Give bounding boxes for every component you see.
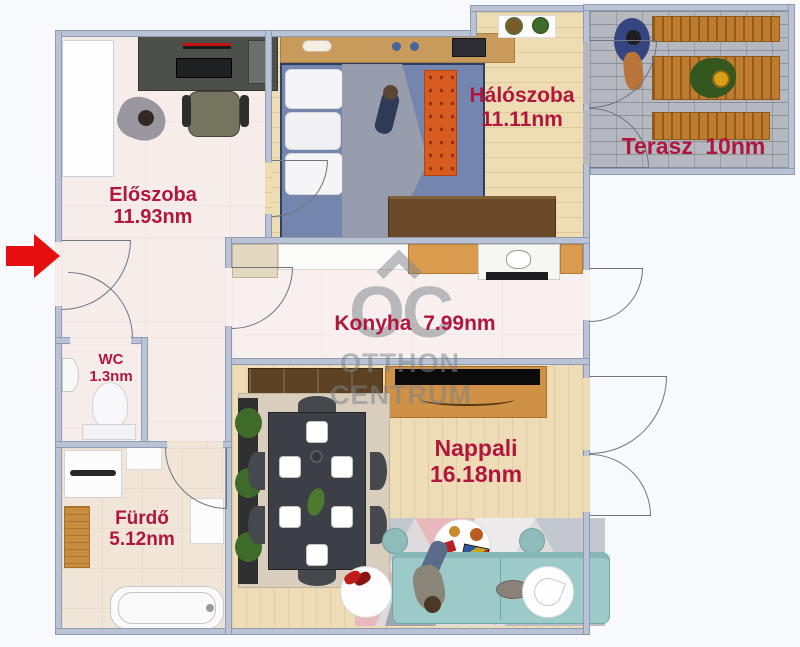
- plate-left-1: [279, 456, 301, 478]
- wc-door-gap: [70, 337, 131, 344]
- room-name: Előszoba: [88, 184, 218, 206]
- coffee-table-dish: [470, 528, 483, 541]
- keyboard: [176, 58, 232, 78]
- room-area: 1.3nm: [80, 369, 142, 386]
- pouf-right: [519, 528, 545, 554]
- wardrobe: [62, 40, 114, 177]
- headboard-item-tablet: [452, 38, 486, 57]
- room-label-furdo: Fürdő 5.12nm: [92, 508, 192, 551]
- room-label-nappali: Nappali 16.18nm: [406, 436, 546, 488]
- wall-terrace-right: [788, 4, 795, 175]
- dining-chair-bottom: [298, 569, 336, 586]
- room-label-terasz: Terasz 10nm: [606, 134, 781, 160]
- wall-bottom: [55, 628, 590, 635]
- kitchen-stove-strip: [486, 272, 548, 280]
- wall-left: [55, 30, 62, 635]
- wc-sink-icon: [62, 358, 79, 392]
- furdo-door-gap: [167, 441, 223, 448]
- plate-right-2: [331, 506, 353, 528]
- headboard-item-tray: [302, 40, 332, 52]
- pouf-left: [382, 528, 408, 554]
- floor-plan: OC OTTHON CENTRUM Előszoba 11.93nm Hálós…: [0, 0, 800, 647]
- headboard-dot-2: [410, 42, 419, 51]
- office-chair-wheel-left: [182, 95, 191, 127]
- wall-terrace-top: [583, 4, 795, 11]
- room-eloszoba-corridor-floor: [148, 337, 225, 448]
- room-label-haloszoba: Hálószoba 11.11nm: [452, 84, 592, 131]
- room-name: WC: [80, 352, 142, 369]
- wall-wc-right: [141, 337, 148, 448]
- room-label-eloszoba: Előszoba 11.93nm: [88, 184, 218, 229]
- kitchen-left-door-gap: [225, 268, 232, 326]
- terrace-planter-1: [652, 16, 780, 42]
- wall-top-right: [470, 5, 590, 12]
- dining-chair-left-1: [248, 452, 265, 490]
- room-name: Hálószoba: [452, 84, 592, 108]
- person-figure-bed-head: [383, 85, 398, 100]
- person-figure-sofa-head: [424, 596, 441, 613]
- potted-plant-icon-2: [532, 17, 549, 34]
- toilet-tank-icon: [82, 424, 136, 440]
- bed-pillow-2: [285, 112, 341, 150]
- plant-icon-1: [235, 408, 262, 438]
- bathtub-faucet-icon: [206, 604, 214, 612]
- kitchen-right-door-gap: [583, 270, 590, 320]
- person-figure-eloszoba-head: [138, 110, 154, 126]
- watermark-line2: CENTRUM: [330, 380, 470, 411]
- toilet-bowl-icon: [92, 382, 128, 428]
- nappali-door-gap-1: [583, 378, 590, 450]
- watermark-line1: OTTHON: [330, 348, 470, 379]
- room-label-konyha: Konyha 7.99nm: [325, 312, 505, 336]
- room-area: 11.11nm: [452, 108, 592, 132]
- office-chair: [188, 91, 240, 137]
- room-name: Konyha: [334, 312, 411, 335]
- table-candle: [310, 450, 323, 463]
- dresser: [388, 196, 556, 240]
- room-name: Terasz: [622, 133, 693, 159]
- potted-plant-icon: [505, 17, 523, 35]
- kitchen-right-door-arc: [590, 268, 643, 322]
- room-name: Nappali: [406, 436, 546, 462]
- room-area: 5.12nm: [92, 529, 192, 550]
- room-area: 16.18nm: [406, 462, 546, 488]
- plate-top: [306, 421, 328, 443]
- nappali-door-gap-2: [583, 456, 590, 512]
- plate-bottom: [306, 544, 328, 566]
- entrance-arrow-icon: [6, 234, 62, 278]
- plate-left-2: [279, 506, 301, 528]
- room-area: 11.93nm: [88, 206, 218, 228]
- bedroom-door-gap: [265, 162, 272, 214]
- desk-decor-red: [183, 43, 231, 49]
- kitchen-cabinet-right: [560, 244, 583, 274]
- dining-chair-right-1: [370, 452, 387, 490]
- room-name: Fürdő: [92, 508, 192, 529]
- washing-machine-slot: [70, 470, 116, 476]
- nappali-door-arc-2: [590, 454, 651, 516]
- bathroom-wood-cabinet: [64, 506, 90, 568]
- sunflower-bloom-icon: [712, 70, 730, 88]
- headboard-dot-1: [392, 42, 401, 51]
- wall-kitchen-top: [225, 237, 590, 244]
- plate-right-1: [331, 456, 353, 478]
- wall-terrace-bottom: [590, 168, 795, 175]
- room-label-wc: WC 1.3nm: [80, 352, 142, 386]
- nappali-door-arc-1: [590, 376, 667, 454]
- bed-pillow-1: [285, 69, 343, 109]
- bathtub-inner: [118, 592, 216, 624]
- room-area: 7.99nm: [423, 312, 495, 335]
- dining-chair-left-2: [248, 506, 265, 544]
- kitchen-sink-icon: [506, 250, 531, 269]
- office-chair-wheel-right: [240, 95, 249, 127]
- coffee-table-bowl: [449, 526, 460, 537]
- room-area: 10nm: [705, 133, 765, 159]
